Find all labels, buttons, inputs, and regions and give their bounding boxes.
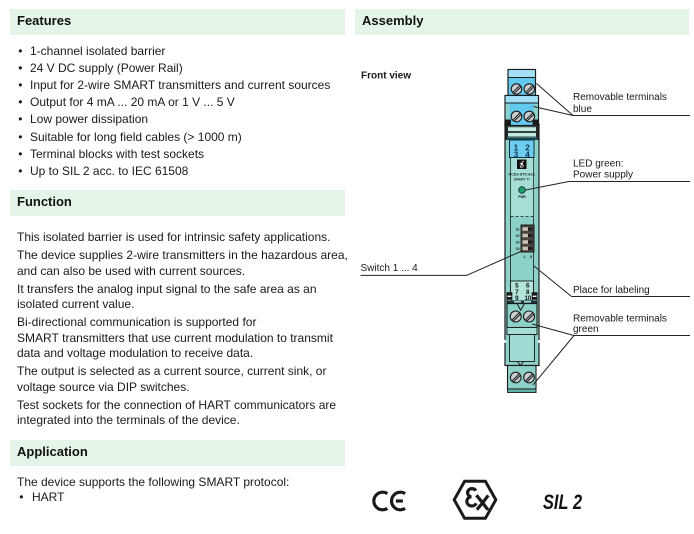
svg-text:SMART Tr: SMART Tr bbox=[514, 178, 531, 182]
svg-text:Switch 1 ... 4: Switch 1 ... 4 bbox=[361, 263, 419, 274]
svg-text:S3: S3 bbox=[516, 241, 520, 245]
svg-text:1: 1 bbox=[524, 255, 526, 259]
svg-text:KCD2-STC-Ex1: KCD2-STC-Ex1 bbox=[508, 172, 534, 176]
svg-text:Power supply: Power supply bbox=[573, 170, 633, 181]
svg-text:Front view: Front view bbox=[361, 71, 411, 82]
svg-text:4: 4 bbox=[525, 150, 530, 159]
svg-text:blue: blue bbox=[573, 104, 592, 115]
svg-text:S1: S1 bbox=[516, 228, 520, 232]
svg-text:Removable terminals: Removable terminals bbox=[573, 92, 667, 103]
svg-text:Place for labeling: Place for labeling bbox=[573, 285, 650, 296]
svg-text:3: 3 bbox=[514, 150, 519, 159]
svg-text:green: green bbox=[573, 324, 599, 335]
svg-text:S4: S4 bbox=[516, 247, 520, 251]
svg-text:Removable terminals: Removable terminals bbox=[573, 314, 667, 325]
svg-text:8: 8 bbox=[530, 255, 532, 259]
svg-text:PWR: PWR bbox=[518, 195, 526, 199]
svg-text:S2: S2 bbox=[516, 234, 520, 238]
svg-text:LED green:: LED green: bbox=[573, 159, 624, 170]
